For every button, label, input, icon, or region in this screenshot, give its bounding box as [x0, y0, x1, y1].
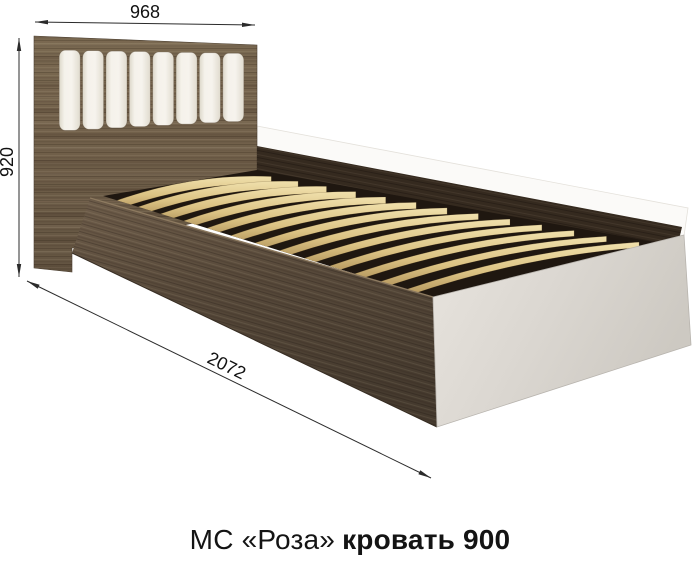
dimension-arrow — [27, 281, 40, 289]
product-caption: МС «Роза»кровать 900 — [0, 524, 700, 556]
cushion-strip — [176, 52, 197, 124]
dimension-arrow — [17, 38, 21, 51]
caption-series-name: МС «Роза» — [190, 524, 335, 555]
cushion-strip — [129, 52, 150, 127]
cushion-strip — [83, 51, 104, 130]
dimension-arrow — [418, 470, 431, 478]
cushion-strip — [153, 52, 174, 125]
dimension-line — [35, 22, 255, 25]
dimension-arrow — [17, 264, 21, 277]
dimension-height-label: 920 — [0, 147, 17, 177]
product-drawing-page: 968 920 2072 МС «Роза»кровать 900 — [0, 0, 700, 563]
cushion-strip — [223, 53, 244, 121]
bed-technical-drawing: 968 920 2072 — [0, 0, 700, 563]
cushion-strip — [59, 50, 80, 130]
cushion-strip — [199, 53, 220, 123]
dimension-arrow — [242, 23, 255, 27]
dimension-width-label: 968 — [130, 2, 160, 22]
cushion-strip — [106, 51, 127, 128]
dimension-arrow — [35, 20, 48, 24]
caption-product-name: кровать 900 — [342, 524, 510, 555]
